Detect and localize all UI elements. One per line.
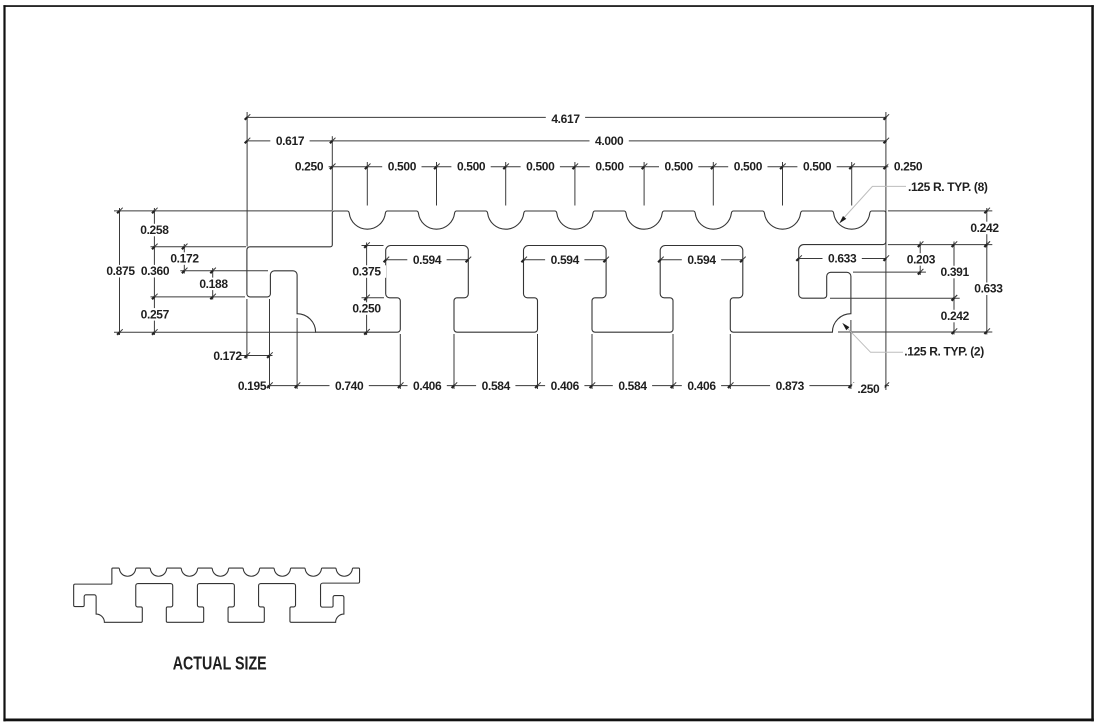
svg-text:0.500: 0.500 [457, 160, 486, 174]
svg-text:0.500: 0.500 [595, 160, 624, 174]
svg-text:0.360: 0.360 [141, 264, 170, 278]
svg-text:.125 R. TYP. (2): .125 R. TYP. (2) [904, 345, 984, 359]
svg-text:0.406: 0.406 [687, 379, 716, 393]
svg-text:0.500: 0.500 [665, 160, 694, 174]
svg-text:ACTUAL SIZE: ACTUAL SIZE [173, 653, 267, 674]
svg-text:4.617: 4.617 [551, 112, 580, 126]
svg-text:0.172: 0.172 [213, 349, 242, 363]
svg-text:0.242: 0.242 [970, 221, 999, 235]
svg-text:4.000: 4.000 [595, 134, 624, 148]
svg-text:0.584: 0.584 [482, 379, 511, 393]
svg-text:.250: .250 [857, 382, 880, 396]
svg-text:0.188: 0.188 [199, 277, 228, 291]
svg-text:0.250: 0.250 [295, 160, 324, 174]
svg-text:0.500: 0.500 [803, 160, 832, 174]
svg-text:0.203: 0.203 [907, 252, 936, 266]
svg-text:0.740: 0.740 [335, 379, 364, 393]
svg-text:0.500: 0.500 [734, 160, 763, 174]
svg-text:0.250: 0.250 [352, 302, 381, 316]
svg-text:0.594: 0.594 [551, 253, 580, 267]
svg-text:0.195: 0.195 [238, 379, 267, 393]
svg-text:0.406: 0.406 [413, 379, 442, 393]
svg-text:0.406: 0.406 [551, 379, 580, 393]
svg-text:0.391: 0.391 [941, 265, 970, 279]
svg-text:0.172: 0.172 [170, 252, 199, 266]
svg-text:0.242: 0.242 [941, 309, 970, 323]
svg-text:0.500: 0.500 [388, 160, 417, 174]
svg-text:0.594: 0.594 [687, 253, 716, 267]
svg-text:0.633: 0.633 [974, 282, 1003, 296]
svg-text:0.258: 0.258 [140, 223, 169, 237]
svg-text:0.500: 0.500 [526, 160, 555, 174]
svg-text:0.617: 0.617 [276, 134, 305, 148]
svg-text:0.875: 0.875 [106, 264, 135, 278]
svg-text:0.584: 0.584 [618, 379, 647, 393]
svg-text:0.594: 0.594 [413, 253, 442, 267]
svg-text:0.375: 0.375 [352, 265, 381, 279]
svg-text:0.250: 0.250 [894, 160, 923, 174]
svg-text:0.257: 0.257 [141, 307, 170, 321]
svg-text:0.633: 0.633 [828, 252, 857, 266]
svg-text:0.873: 0.873 [776, 379, 805, 393]
svg-text:.125 R. TYP. (8): .125 R. TYP. (8) [908, 180, 988, 194]
